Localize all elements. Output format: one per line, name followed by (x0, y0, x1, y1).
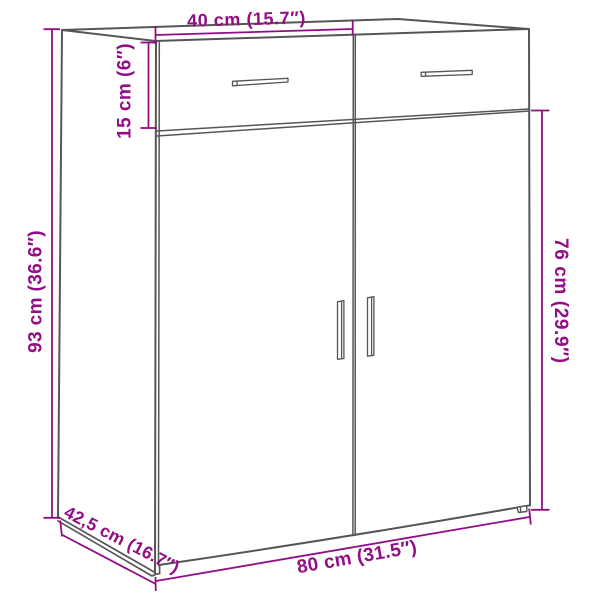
svg-text:15 cm (6″): 15 cm (6″) (115, 43, 136, 139)
svg-text:76 cm (29.9″): 76 cm (29.9″) (550, 238, 571, 364)
svg-text:40 cm (15.7″): 40 cm (15.7″) (187, 8, 306, 31)
svg-text:93 cm (36.6″): 93 cm (36.6″) (25, 230, 46, 353)
